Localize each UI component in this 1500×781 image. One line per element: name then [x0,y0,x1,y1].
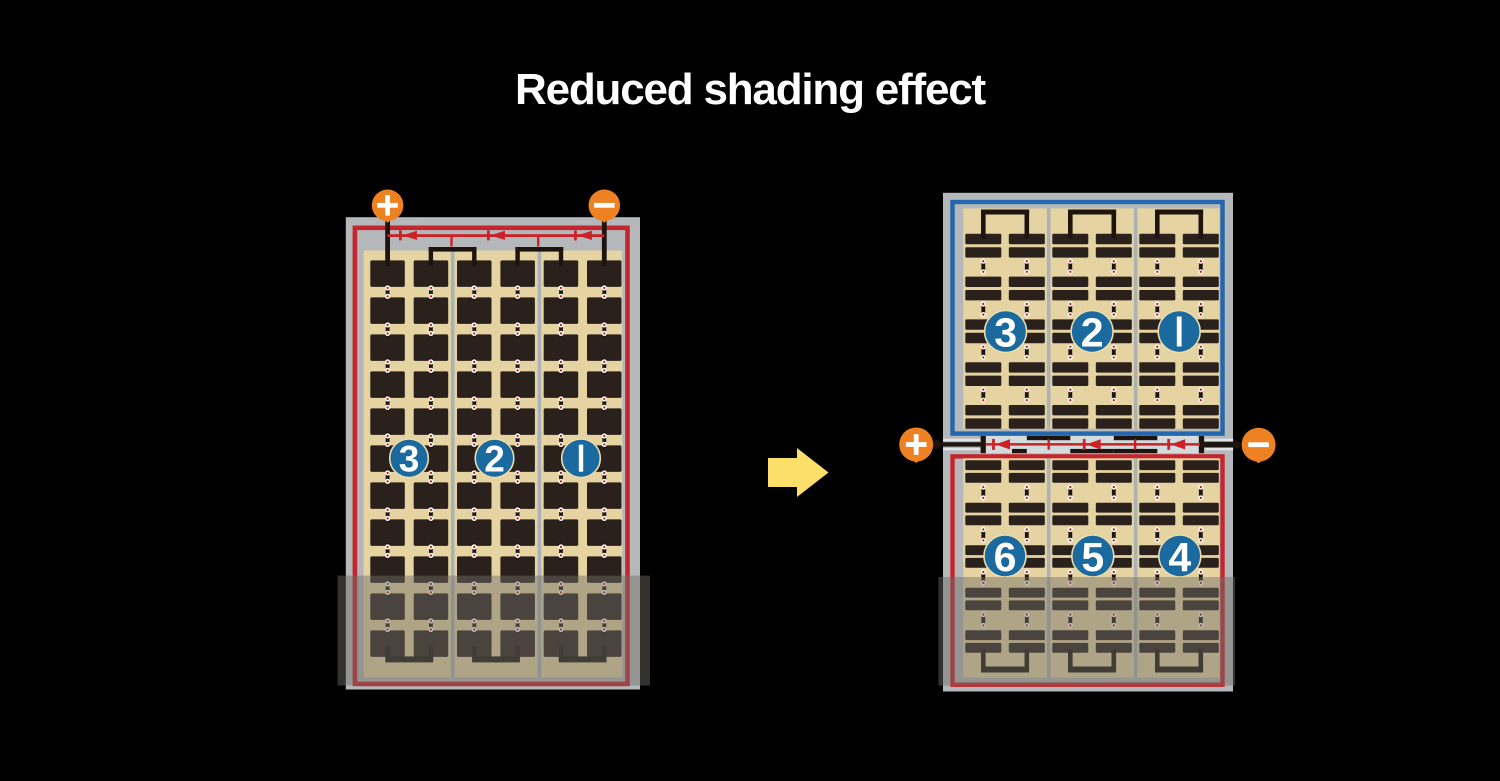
svg-text:6: 6 [994,534,1017,580]
svg-text:2: 2 [1081,309,1104,355]
svg-text:3: 3 [399,439,420,480]
svg-text:2: 2 [484,439,505,480]
svg-text:5: 5 [1081,534,1104,580]
svg-text:3: 3 [994,309,1017,355]
svg-text:4: 4 [1168,534,1191,580]
svg-text:Reduced shading effect: Reduced shading effect [515,65,986,114]
